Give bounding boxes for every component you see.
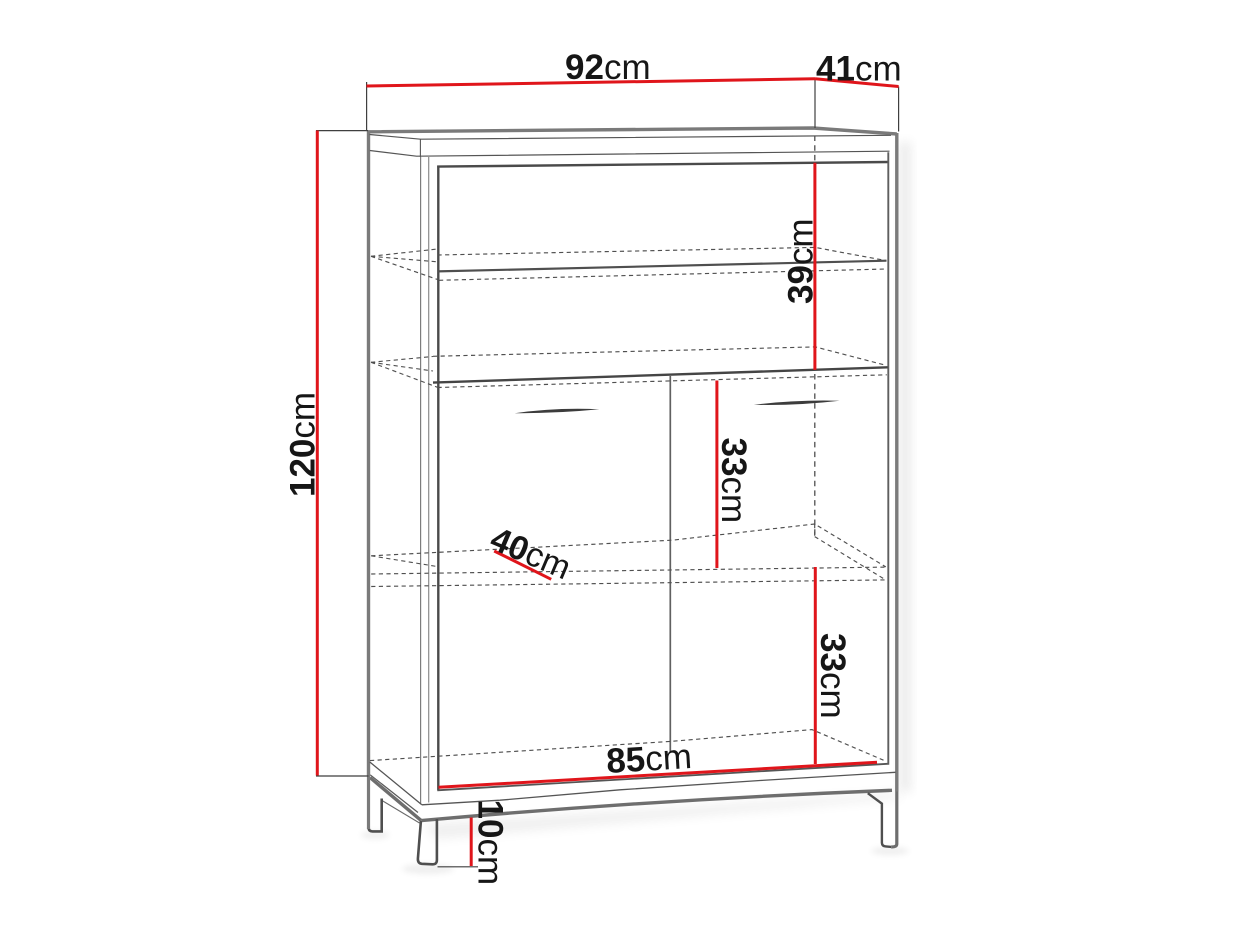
svg-text:92cm: 92cm — [565, 48, 651, 87]
svg-text:33cm: 33cm — [714, 438, 753, 524]
svg-text:40cm: 40cm — [485, 520, 576, 587]
svg-text:41cm: 41cm — [816, 50, 902, 89]
svg-text:39cm: 39cm — [782, 218, 821, 304]
svg-text:85cm: 85cm — [605, 737, 693, 781]
svg-text:33cm: 33cm — [813, 633, 852, 719]
svg-text:120cm: 120cm — [283, 392, 322, 497]
svg-text:10cm: 10cm — [471, 800, 510, 886]
